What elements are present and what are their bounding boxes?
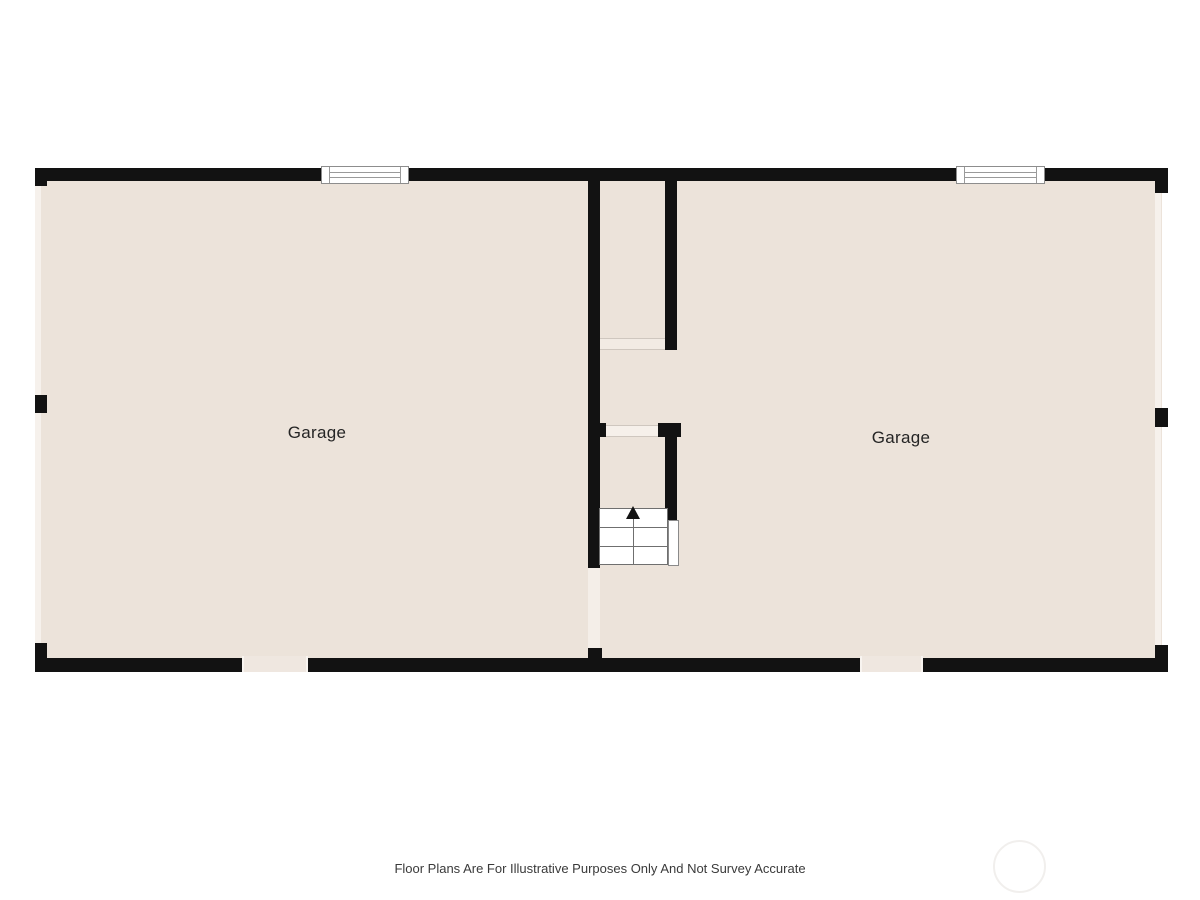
corner-post-bottom-right [1155,645,1168,672]
bottom-wall-segment-left [35,658,242,672]
corner-post-top-left [35,168,47,186]
corridor-wall-opening [588,566,600,650]
landing-threshold [600,338,665,350]
room-label-garage-left: Garage [288,423,347,443]
window-pane-line [965,172,1036,173]
left-wall-opening [35,184,41,644]
garage-door-opening-right [860,656,923,672]
stair-doorway-threshold [606,425,658,437]
room-label-garage-right: Garage [872,428,931,448]
window-frame-divider [1036,167,1037,183]
bottom-wall-segment-middle [308,658,860,672]
window-top-right [956,166,1045,184]
window-pane-line [330,172,400,173]
window-pane-line [965,177,1036,178]
corridor-bottom-stub [588,648,602,672]
floor-plan-page: Garage Garage Floor Plans Are For Illust… [0,0,1200,900]
window-pane-line [330,177,400,178]
window-frame-divider [329,167,330,183]
window-frame-divider [964,167,965,183]
window-top-left [321,166,409,184]
garage-door-opening-left [242,656,308,672]
mid-post-left [35,395,47,413]
window-frame-divider [400,167,401,183]
stair-side-rail [668,520,679,566]
mid-post-right [1155,408,1168,427]
corner-post-bottom-left [35,643,47,672]
stair-door-jamb-right [658,423,681,437]
stairwell-wall-right-upper [665,181,677,350]
floor-area [38,175,1162,662]
corner-post-top-right [1155,168,1168,193]
watermark-logo-circle [993,840,1046,893]
bottom-wall-segment-right [923,658,1168,672]
stair-door-jamb-left [599,423,606,437]
stairs-up-arrow-icon [626,506,640,519]
